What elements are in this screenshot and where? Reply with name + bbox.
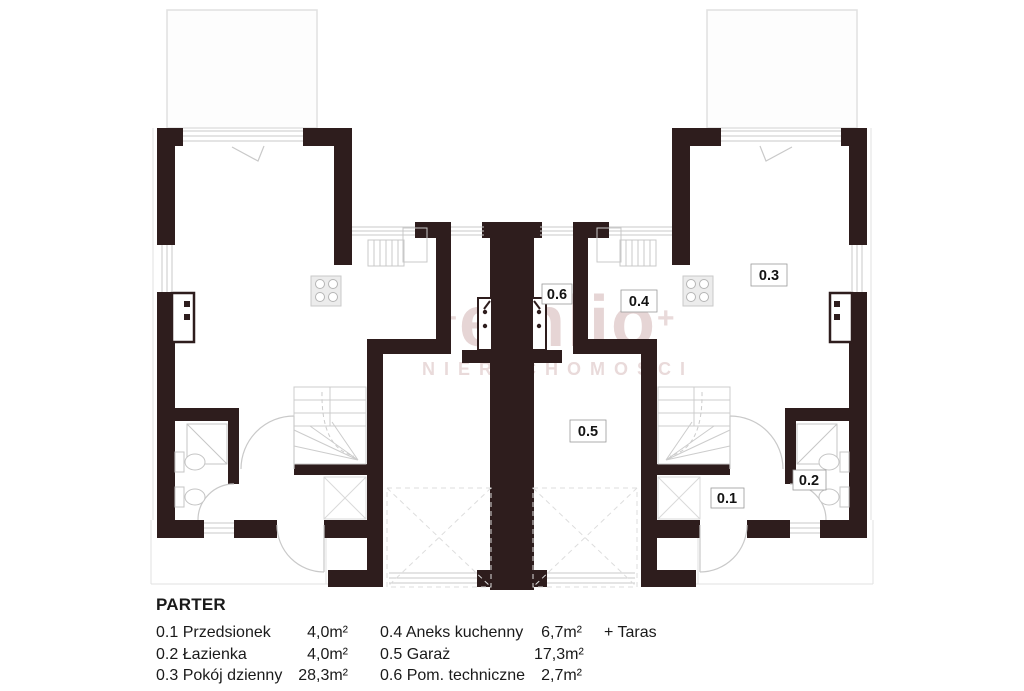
room-label-0-4: 0.4 (621, 290, 657, 312)
svg-text:0.5: 0.5 (578, 424, 598, 440)
terrace-outline (707, 10, 857, 128)
stairs (658, 387, 730, 464)
legend-title: PARTER (156, 595, 666, 615)
legend-item-0-4: 0.4 Aneks kuchenny (380, 622, 534, 644)
svg-text:0.6: 0.6 (547, 287, 567, 303)
bathroom-fixtures (797, 424, 849, 507)
windows (540, 131, 862, 583)
legend-item-0-1: 0.1 Przedsionek (156, 622, 290, 644)
room-label-0-6: 0.6 (542, 284, 572, 304)
svg-text:0.2: 0.2 (799, 473, 819, 489)
legend-area-0-1: 4,0m² (290, 622, 348, 644)
unit-left-gray-mirrored (151, 10, 512, 590)
understairs-hatch (658, 477, 700, 519)
legend-item-0-3: 0.3 Pokój dzienny (156, 665, 290, 687)
legend-item-0-5: 0.5 Garaż (380, 644, 534, 666)
floor-plan-page: +emlio+ NIERUCHOMOŚCI (0, 0, 1024, 691)
svg-text:0.3: 0.3 (759, 268, 779, 284)
legend-item-0-6: 0.6 Pom. techniczne (380, 665, 534, 687)
legend-area-0-2: 4,0m² (290, 644, 348, 666)
floor-plan-drawing: 0.6 0.4 0.3 0.5 0.1 0.2 (0, 0, 1024, 592)
cooktop-icon (683, 276, 713, 306)
room-label-0-1: 0.1 (711, 488, 744, 508)
walls (512, 128, 867, 590)
room-label-0-5: 0.5 (570, 420, 606, 442)
room-label-0-2: 0.2 (793, 470, 826, 490)
room-label-0-3: 0.3 (751, 264, 787, 286)
chimney (830, 293, 852, 342)
toilet-icon (819, 452, 849, 472)
legend-area-0-6: 2,7m² (534, 665, 582, 687)
legend-area-0-4: 6,7m² (534, 622, 582, 644)
legend-extra-taras: + Taras (582, 622, 666, 644)
legend: PARTER 0.1 Przedsionek 4,0m² 0.4 Aneks k… (156, 595, 666, 687)
svg-text:0.4: 0.4 (629, 294, 649, 310)
legend-area-0-3: 28,3m² (290, 665, 348, 687)
exterior-outlines (696, 128, 873, 584)
legend-area-0-5: 17,3m² (534, 644, 582, 666)
garage-parking-cross (533, 488, 637, 587)
svg-text:0.1: 0.1 (717, 491, 737, 507)
legend-item-0-2: 0.2 Łazienka (156, 644, 290, 666)
legend-rows: 0.1 Przedsionek 4,0m² 0.4 Aneks kuchenny… (156, 622, 666, 687)
boiler (532, 298, 546, 350)
